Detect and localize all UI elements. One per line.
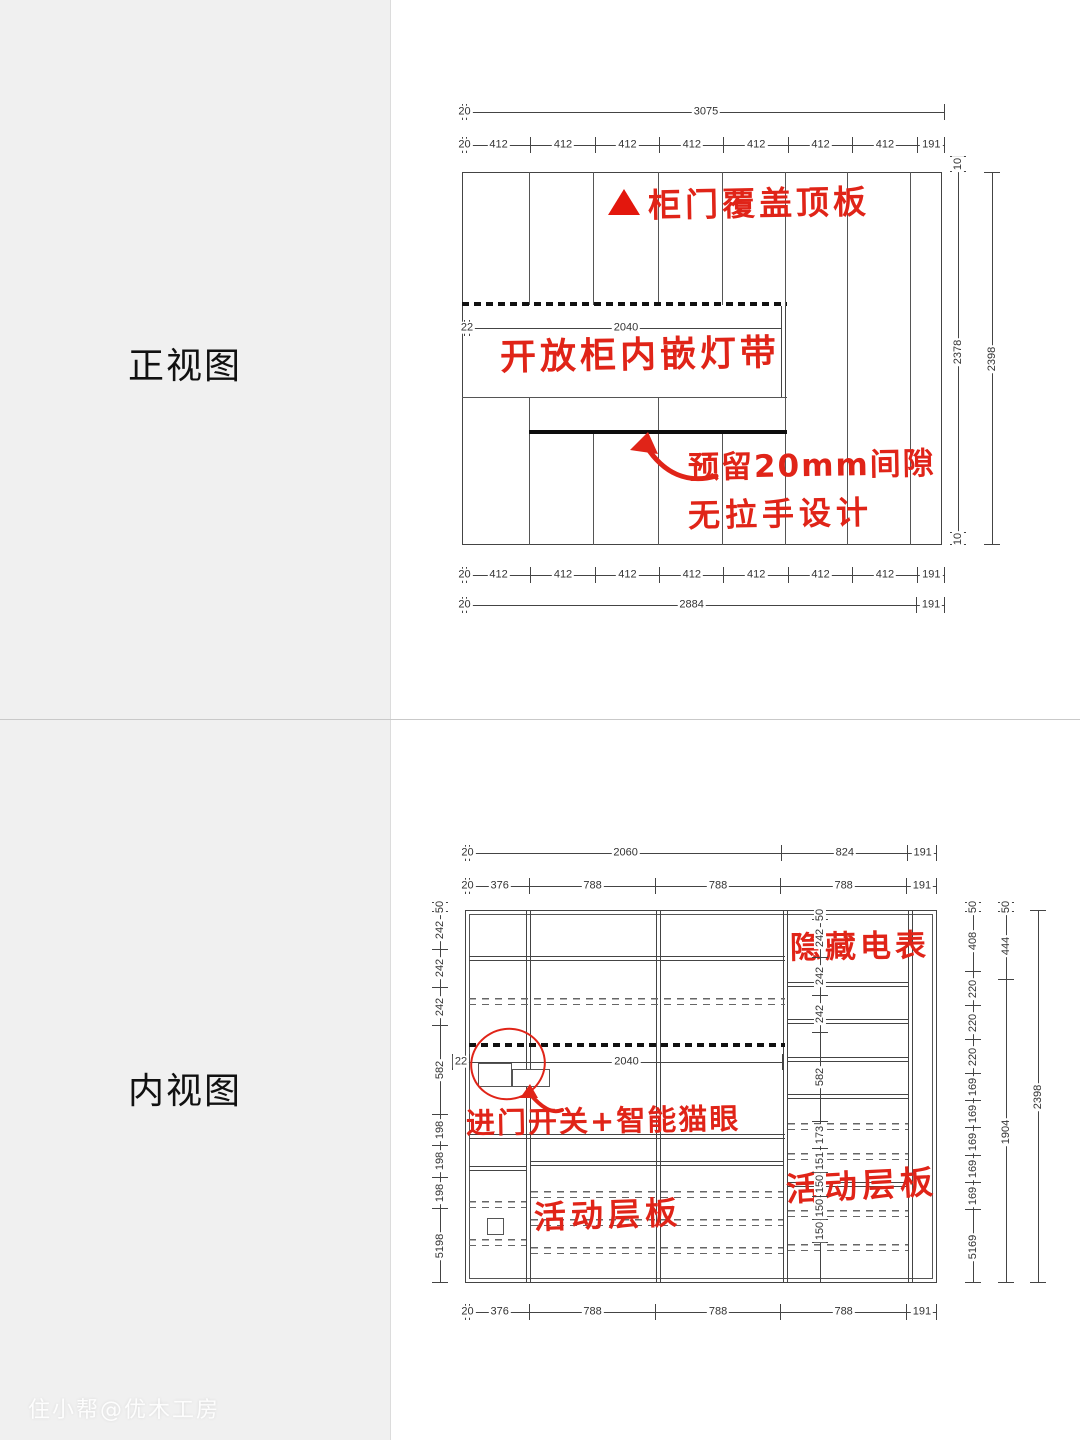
interior-dim-right-outer: 2398 <box>1030 910 1046 1283</box>
cabinet-line <box>462 397 787 398</box>
partition-line <box>908 910 913 1283</box>
adjustable-shelf-dashed <box>469 1201 526 1208</box>
interior-dim-right-inner-chain: 504082202202201691691691691695169 <box>965 902 981 1283</box>
cabinet-line <box>847 172 848 545</box>
interior-dim-top-overall: 202060824191 <box>465 845 937 861</box>
front-view-label: 正视图 <box>128 337 242 389</box>
interior-dim-right-mid-chain: 504441904 <box>998 902 1014 1283</box>
cabinet-line <box>529 398 530 545</box>
watermark: 住小帮@优木工房 <box>28 1392 220 1424</box>
interior-dim-top-bays: 20376788788788191 <box>465 878 937 894</box>
cabinet-line <box>593 433 594 545</box>
annotation-shelf-right: 活动层板 <box>785 1164 939 1208</box>
cabinet-line <box>529 172 530 305</box>
socket-box <box>487 1218 504 1235</box>
front-dim-overall-width: 203075 <box>462 104 945 120</box>
front-dim-height-inner: 10237810 <box>950 156 966 545</box>
annotation-gap-2: 无拉手设计 <box>688 495 874 533</box>
cabinet-line <box>593 172 594 305</box>
front-dim-door-widths-top: 20412412412412412412412191 <box>462 137 945 153</box>
shelf-line <box>469 956 785 961</box>
cabinet-line <box>910 172 911 545</box>
adjustable-shelf-dashed <box>531 1247 783 1254</box>
annotation-meter: 隐藏电表 <box>790 929 931 966</box>
shelf-line <box>531 1161 783 1166</box>
adjustable-shelf-dashed <box>788 1244 908 1251</box>
annotation-led: 开放柜内嵌灯带 <box>500 334 781 378</box>
front-dim-door-widths-bottom: 20412412412412412412412191 <box>462 567 945 583</box>
red-triangle-icon <box>608 189 640 215</box>
interior-dim-center-chain: 50242242242582173151150150150 <box>812 910 828 1283</box>
annotation-roof: 柜门覆盖顶板 <box>648 184 871 224</box>
adjustable-shelf-dashed <box>788 1153 908 1160</box>
shelf-line <box>788 1094 908 1099</box>
shelf-line <box>788 1019 908 1024</box>
interior-dim-left-chain: 502422422425821981981985198 <box>432 902 448 1283</box>
led-strip-dashed-line <box>462 302 787 306</box>
interior-dim-bottom-bays: 20376788788788191 <box>465 1304 937 1320</box>
annotation-gap-1: 预留20mm间隙 <box>688 447 936 485</box>
adjustable-shelf-dashed <box>788 1123 908 1130</box>
adjustable-shelf-dashed <box>788 1210 908 1217</box>
front-dim-bottom-overall: 202884191 <box>462 597 945 613</box>
annotation-switch: 进门开关+智能猫眼 <box>466 1104 741 1141</box>
horizontal-divider <box>0 719 1080 720</box>
interior-view-label: 内视图 <box>128 1062 242 1114</box>
adjustable-shelf-dashed <box>469 1239 526 1246</box>
left-gray-band <box>0 0 391 1440</box>
annotation-shelf-mid: 活动层板 <box>533 1195 682 1235</box>
page: 正视图 内视图 203075 2041241241241241241241219… <box>0 0 1080 1440</box>
front-dim-height-outer: 2398 <box>984 172 1000 545</box>
shelf-line <box>788 1057 908 1062</box>
adjustable-shelf-dashed <box>469 998 785 1005</box>
shelf-line <box>788 982 908 987</box>
shelf-line <box>469 1166 526 1171</box>
